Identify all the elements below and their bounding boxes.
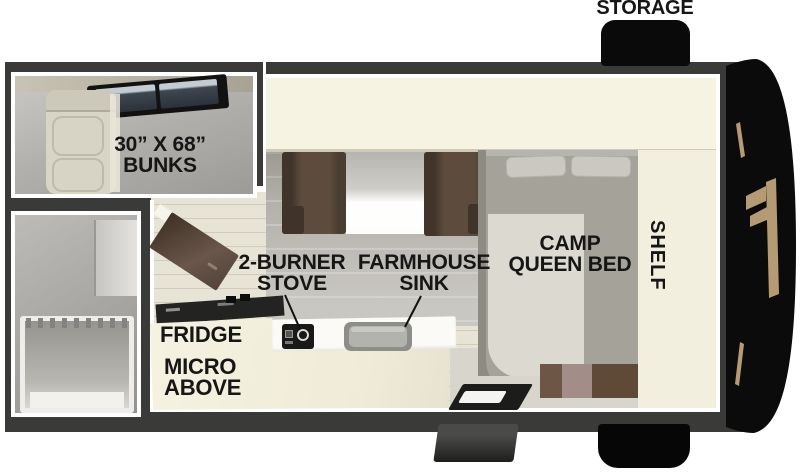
stove-dial-icon — [285, 330, 293, 338]
stove-dash — [285, 341, 293, 344]
bunk-bed-head — [46, 90, 116, 112]
sink-line2: SINK — [354, 273, 494, 294]
camp-text: CAMP — [485, 233, 655, 254]
sink-label: FARMHOUSE SINK — [354, 252, 494, 294]
stove-knob — [240, 294, 250, 301]
fridge-glint — [166, 308, 180, 312]
entry-step-mat-inner — [458, 391, 507, 403]
skylight-pane — [159, 79, 219, 109]
stove-line1: 2-BURNER — [222, 252, 362, 273]
queen-bed-text: QUEEN BED — [485, 254, 655, 275]
bath-window — [94, 220, 137, 296]
bunks-label: 30” X 68” BUNKS — [75, 134, 245, 176]
dinette-table — [346, 152, 424, 234]
storage-label: STORAGE — [570, 0, 720, 17]
bunks-size-text: 30” X 68” — [75, 134, 245, 155]
two-burner-stove-icon — [282, 324, 314, 349]
tub-rim — [30, 392, 124, 408]
overhead-cabinet — [266, 78, 716, 152]
bed-foot-cushion — [592, 364, 638, 398]
fridge-label: FRIDGE — [160, 324, 280, 345]
camper-nose-cap — [726, 56, 800, 438]
door-handle — [207, 262, 218, 271]
bed-pillow-left — [506, 155, 567, 178]
sink-line1: FARMHOUSE — [354, 252, 494, 273]
bed-foot-cushion — [562, 364, 592, 398]
exterior-storage-box — [601, 20, 690, 66]
stove-line2: STOVE — [222, 273, 362, 294]
micro-above-label: MICRO ABOVE — [164, 356, 284, 398]
tub-faucet-row — [26, 318, 128, 328]
farmhouse-sink-icon — [344, 322, 412, 351]
bunks-text: BUNKS — [75, 155, 245, 176]
micro-line1: MICRO — [164, 356, 284, 377]
jack-pad — [598, 424, 690, 468]
dinette-armrest-left — [282, 206, 304, 234]
camp-queen-bed-label: CAMP QUEEN BED — [485, 233, 655, 275]
sink-rim — [351, 327, 405, 332]
entry-step-exterior — [433, 424, 518, 462]
rv-floor-plan: STORAGE 30” X 68” BUNKS CAMP QUEEN BED S… — [0, 0, 800, 472]
bed-foot-cushion — [540, 364, 562, 398]
burner-icon — [297, 329, 309, 341]
bed-pillow-right — [571, 155, 631, 177]
shelf-label: SHELF — [644, 210, 670, 300]
stove-knob — [226, 296, 236, 303]
micro-line2: ABOVE — [164, 377, 284, 398]
stove-label: 2-BURNER STOVE — [222, 252, 362, 294]
